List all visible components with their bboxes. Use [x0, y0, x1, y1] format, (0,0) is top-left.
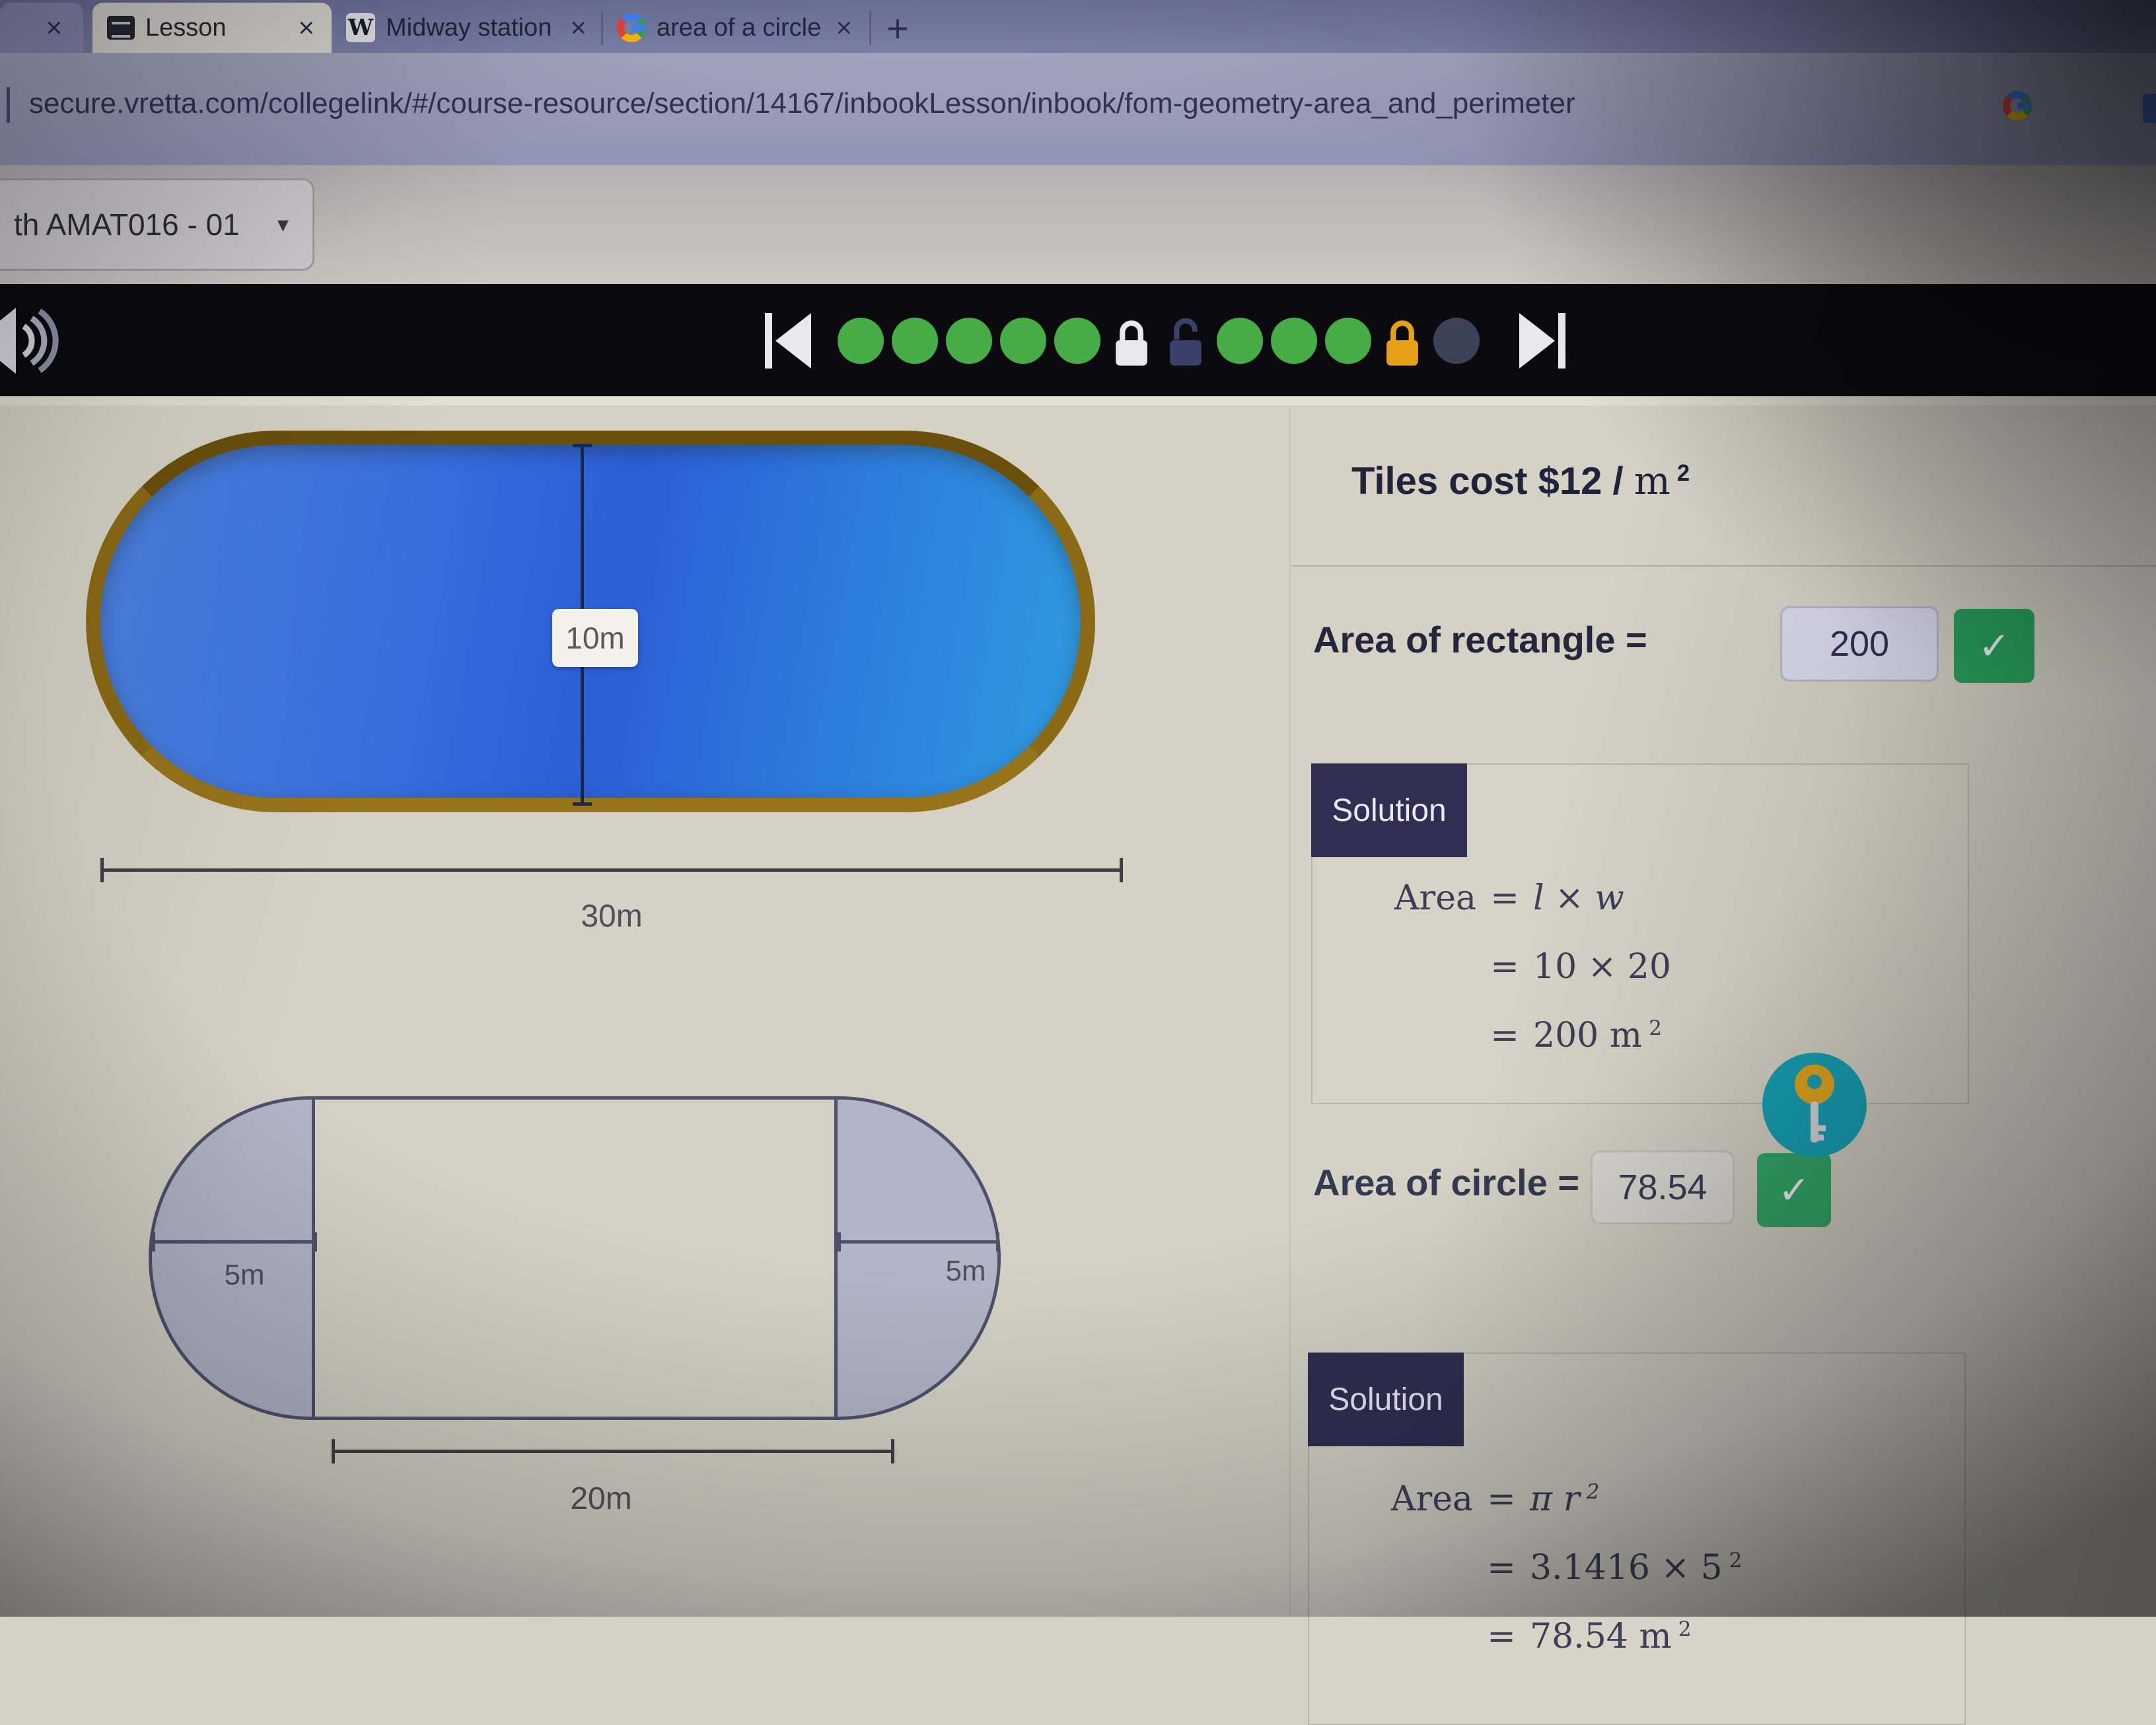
skip-to-end-button[interactable] — [1519, 313, 1565, 369]
tab-google-search[interactable]: area of a circle - Google Search × — [605, 3, 867, 53]
area-circle-check-button[interactable]: ✓ — [1757, 1153, 1831, 1227]
google-favicon — [617, 13, 646, 42]
lesson-favicon — [107, 16, 135, 40]
tab-partial[interactable]: × — [0, 3, 83, 53]
pool-length-label: 30m — [539, 898, 684, 934]
stadium-right-radius-line — [838, 1240, 999, 1244]
area-circle-input[interactable] — [1591, 1150, 1735, 1224]
pool-length-dimension-line — [100, 868, 1123, 872]
tab-title: Midway station (CTA) - Wikipedia — [386, 14, 557, 42]
browser-tab-bar: × Lesson × W Midway station (CTA) - Wiki… — [0, 0, 2156, 53]
solution-math: Area=π r2=3.1416 × 52=78.54 m2 — [1347, 1479, 1945, 1685]
progress-dot-green[interactable] — [1325, 318, 1371, 364]
lock-closed-orange-icon[interactable] — [1379, 310, 1425, 371]
progress-dot-green[interactable] — [1217, 318, 1263, 364]
area-rectangle-check-button[interactable]: ✓ — [1954, 609, 2034, 683]
solution-math-row: Area=π r2 — [1347, 1479, 1945, 1548]
progress-dot-green[interactable] — [1000, 318, 1046, 364]
progress-dot-green[interactable] — [1271, 318, 1317, 364]
solution-math-row: =3.1416 × 52 — [1347, 1548, 1945, 1617]
tab-close-icon[interactable]: × — [567, 14, 589, 42]
skip-to-start-button[interactable] — [765, 313, 811, 369]
tab-divider — [601, 11, 603, 45]
tab-divider — [869, 11, 871, 45]
lock-closed-white-icon[interactable] — [1108, 310, 1155, 371]
check-icon: ✓ — [1978, 623, 2011, 668]
area-circle-label: Area of circle = — [1313, 1161, 1579, 1204]
solution-math: Area=l × w=10 × 20=200 m2 — [1351, 878, 1948, 1084]
solution-tab: Solution — [1308, 1353, 1464, 1446]
area-rectangle-input[interactable] — [1780, 606, 1939, 682]
lesson-player-bar — [0, 284, 2156, 396]
screen: × Lesson × W Midway station (CTA) - Wiki… — [0, 0, 2156, 1617]
course-header-row: th AMAT016 - 01 ▾ — [0, 165, 2156, 284]
content-top-edge — [0, 396, 2156, 405]
solution-box-rectangle: Solution Area=l × w=10 × 20=200 m2 — [1311, 763, 1969, 1104]
stadium-right-radius-label: 5m — [919, 1255, 1012, 1288]
tab-wikipedia[interactable]: W Midway station (CTA) - Wikipedia × — [334, 3, 601, 53]
tab-title: area of a circle - Google Search — [657, 14, 822, 42]
url-bar: secure.vretta.com/collegelink/#/course-r… — [0, 53, 2156, 165]
tab-lesson[interactable]: Lesson × — [92, 3, 332, 53]
solution-math-row: =78.54 m2 — [1347, 1617, 1945, 1685]
stadium-figure — [149, 1096, 1001, 1420]
url-text[interactable]: secure.vretta.com/collegelink/#/course-r… — [29, 87, 1575, 120]
course-section-dropdown[interactable]: th AMAT016 - 01 ▾ — [0, 178, 314, 271]
solution-math-row: =200 m2 — [1351, 1016, 1948, 1084]
course-section-label: th AMAT016 - 01 — [14, 207, 266, 242]
panel-divider — [1289, 405, 1291, 1617]
progress-dots — [838, 309, 1480, 372]
tab-title: Lesson — [145, 14, 285, 42]
stadium-length-label: 20m — [528, 1481, 674, 1517]
solution-math-row: =10 × 20 — [1351, 947, 1948, 1016]
stadium-left-radius-line — [152, 1240, 317, 1244]
area-rectangle-label: Area of rectangle = — [1313, 618, 1647, 661]
answer-key-icon[interactable] — [1762, 1053, 1867, 1157]
stadium-left-radius-label: 5m — [198, 1259, 291, 1292]
wikipedia-favicon: W — [346, 13, 375, 42]
tab-close-icon[interactable]: × — [833, 14, 855, 42]
tiles-cost-heading: Tiles cost $12 / m2 — [1351, 458, 1690, 503]
tab-close-icon[interactable]: × — [43, 14, 65, 42]
google-icon[interactable] — [2003, 91, 2032, 120]
tab-close-icon[interactable]: × — [295, 14, 317, 42]
solution-box-circle: Solution Area=π r2=3.1416 × 52=78.54 m2 — [1308, 1353, 1966, 1725]
urlbar-edge-mark — [7, 87, 10, 123]
dropdown-caret-icon: ▾ — [277, 211, 289, 238]
stadium-outline — [149, 1096, 1001, 1420]
pool-width-label: 10m — [552, 609, 638, 667]
progress-dot-green[interactable] — [892, 318, 938, 364]
progress-dot-green[interactable] — [838, 318, 884, 364]
solution-math-row: Area=l × w — [1351, 878, 1948, 947]
solution-tab: Solution — [1311, 763, 1467, 857]
progress-dot-green[interactable] — [946, 318, 992, 364]
progress-dot-inactive[interactable] — [1433, 318, 1480, 364]
new-tab-button[interactable]: + — [886, 7, 909, 51]
tiles-cost-text: Tiles cost $12 / — [1351, 460, 1634, 503]
audio-speaker-icon[interactable] — [0, 302, 62, 379]
toolbar-icon-partial — [2143, 94, 2156, 123]
check-icon: ✓ — [1778, 1168, 1811, 1213]
section-divider — [1292, 565, 2156, 567]
tiles-cost-exponent: 2 — [1677, 460, 1690, 486]
progress-dot-green[interactable] — [1054, 318, 1100, 364]
stadium-length-dimension-line — [332, 1450, 894, 1453]
tiles-cost-unit: m — [1634, 458, 1671, 503]
lock-open-dark-icon[interactable] — [1163, 310, 1209, 371]
